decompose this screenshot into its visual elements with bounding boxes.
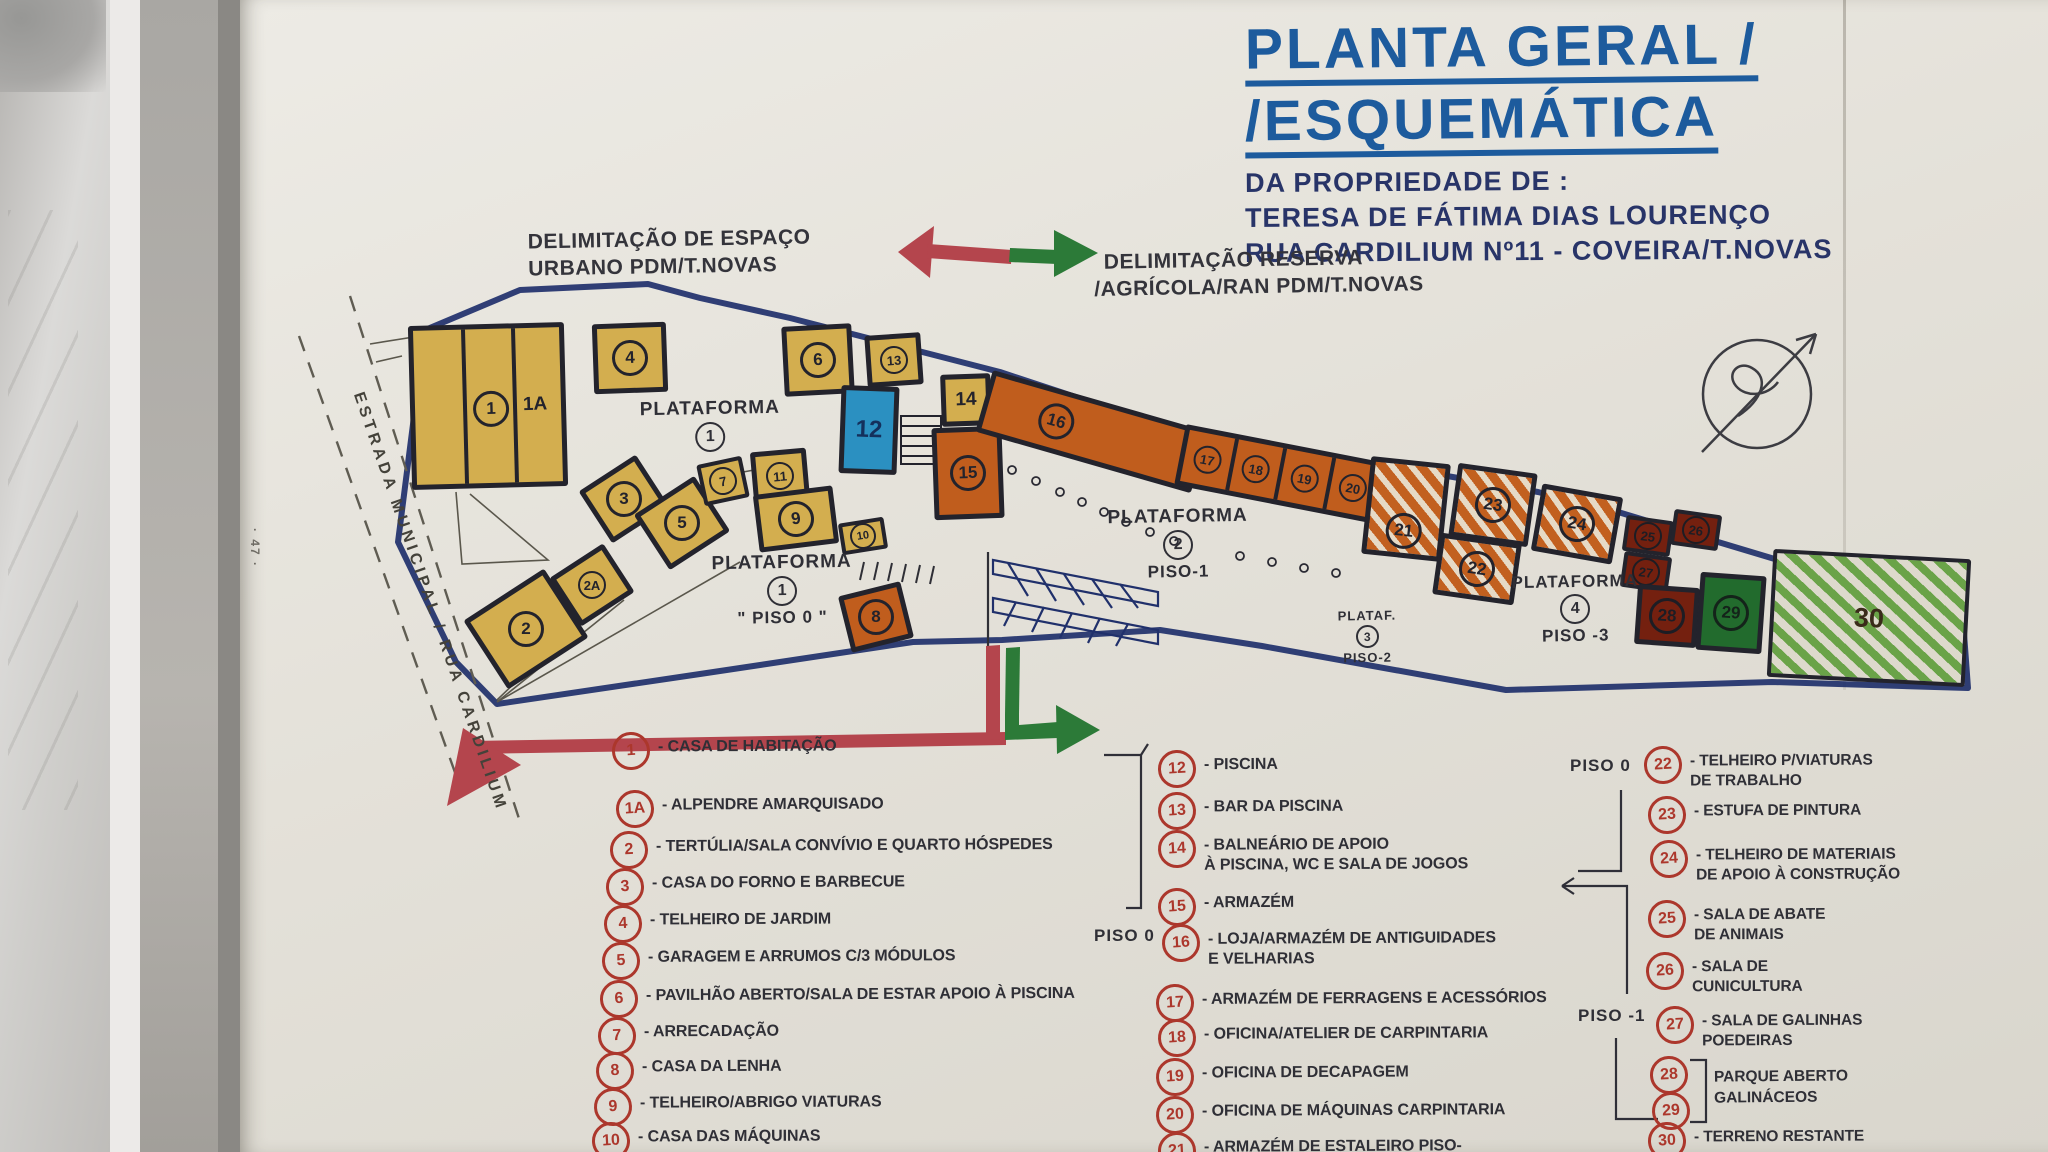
building-number: 19 bbox=[1288, 462, 1321, 495]
legend-text: - CASA DAS MÁQUINAS bbox=[638, 1122, 821, 1148]
building-number: 20 bbox=[1337, 472, 1370, 505]
building-number: 15 bbox=[949, 454, 986, 491]
piso-label: PISO-2 bbox=[1338, 649, 1397, 665]
legend-text-line1: - BALNEÁRIO DE APOIO bbox=[1204, 836, 1389, 854]
plataforma-number: 4 bbox=[1560, 594, 1591, 625]
legend-number: 17 bbox=[1155, 983, 1195, 1023]
building-number: 28 bbox=[1648, 597, 1686, 635]
building-number: 21 bbox=[1384, 511, 1424, 551]
legend-number: 15 bbox=[1157, 887, 1197, 927]
wall-divider bbox=[461, 330, 469, 484]
legend-item-24: 24- TELHEIRO DE MATERIAISDE APOIO À CONS… bbox=[1650, 840, 1900, 885]
legend-text: - BAR DA PISCINA bbox=[1204, 792, 1343, 818]
legend-item-22: 22- TELHEIRO P/VIATURASDE TRABALHO bbox=[1644, 746, 1873, 791]
building-number: 2A bbox=[578, 571, 606, 599]
legend-text: - GARAGEM E ARRUMOS C/3 MÓDULOS bbox=[648, 941, 956, 968]
legend-text: - SALA DECUNICULTURA bbox=[1692, 952, 1803, 998]
legend-item-30: 30- TERRENO RESTANTE bbox=[1648, 1122, 1864, 1152]
legend-text: - ARMAZÉM bbox=[1204, 888, 1294, 913]
plataforma-1-label: PLATAFORMA 1 bbox=[640, 397, 781, 453]
legend-item-3: 3- CASA DO FORNO E BARBECUE bbox=[606, 868, 905, 906]
legend-text: - ARMAZÉM DE FERRAGENS E ACESSÓRIOS bbox=[1202, 983, 1547, 1010]
legend-item-8: 8- CASA DA LENHA bbox=[596, 1052, 782, 1090]
plataforma-4-label: PLATAFORMA 4 PISO -3 bbox=[1511, 571, 1639, 647]
plataforma-1-piso0-label: PLATAFORMA 1 " PISO 0 " bbox=[711, 551, 852, 629]
photo-of-hand-drawn-site-plan: · 47 · bbox=[0, 0, 2048, 1152]
piso-0-tag-middle: PISO 0 bbox=[1094, 926, 1155, 946]
legend-item-15: 15- ARMAZÉM bbox=[1158, 888, 1294, 926]
legend-number: 2 bbox=[609, 830, 649, 870]
legend-text: - ALPENDRE AMARQUISADO bbox=[662, 789, 884, 815]
plataforma-2-label: PLATAFORMA 2 PISO-1 bbox=[1107, 505, 1248, 583]
compass-north-icon bbox=[1702, 334, 1816, 452]
legend-number: 10 bbox=[591, 1121, 631, 1152]
legend-item-28: 28 bbox=[1650, 1056, 1688, 1094]
building-28-parque-galinaceos: 28 bbox=[1634, 584, 1700, 648]
legend-item-17: 17- ARMAZÉM DE FERRAGENS E ACESSÓRIOS bbox=[1156, 984, 1547, 1022]
delimitacao-reserva-label: DELIMITAÇÃO RESERVA /AGRÍCOLA/RAN PDM/T.… bbox=[1104, 243, 1424, 303]
legend-text-line2: E VELHARIAS bbox=[1208, 948, 1496, 970]
title-block: PLANTA GERAL / /ESQUEMÁTICA DA PROPRIEDA… bbox=[1245, 18, 1832, 269]
legend-item-26: 26- SALA DECUNICULTURA bbox=[1646, 952, 1803, 997]
legend-text: - TELHEIRO DE JARDIM bbox=[650, 905, 831, 931]
legend-text: - PISCINA bbox=[1204, 750, 1278, 775]
building-29-parque-galinaceos: 29 bbox=[1695, 572, 1766, 654]
building-number: 13 bbox=[879, 345, 909, 375]
legend-item-14: 14- BALNEÁRIO DE APOIOÀ PISCINA, WC E SA… bbox=[1158, 830, 1468, 875]
legend-text: - PAVILHÃO ABERTO/SALA DE ESTAR APOIO À … bbox=[646, 979, 1075, 1006]
legend-text: - CASA DE HABITAÇÃO bbox=[658, 732, 837, 758]
plataforma-number: 1 bbox=[695, 422, 726, 453]
building-number: 14 bbox=[955, 389, 977, 412]
building-number: 26 bbox=[1680, 514, 1712, 546]
legend-item-18: 18- OFICINA/ATELIER DE CARPINTARIA bbox=[1158, 1019, 1488, 1057]
legend-text: - SALA DE ABATEDE ANIMAIS bbox=[1694, 900, 1826, 946]
building-number: 2 bbox=[508, 611, 544, 647]
legend-number: 6 bbox=[599, 979, 639, 1019]
delim-reserva-line2: /AGRÍCOLA/RAN PDM/T.NOVAS bbox=[1094, 272, 1424, 301]
building-number: 7 bbox=[706, 464, 739, 497]
building-9-telheiro-viaturas: 9 bbox=[753, 485, 839, 552]
legend-number: 21 bbox=[1157, 1131, 1197, 1152]
legend-item-9: 9- TELHEIRO/ABRIGO VIATURAS bbox=[594, 1088, 882, 1126]
legend-number: 4 bbox=[603, 904, 643, 944]
piso-label: " PISO 0 " bbox=[712, 607, 852, 629]
area-30-terreno-restante: 30 bbox=[1767, 549, 1971, 687]
building-number: 6 bbox=[799, 341, 837, 379]
plataforma-number: 2 bbox=[1163, 530, 1194, 561]
page-title-line2: /ESQUEMÁTICA bbox=[1245, 88, 1719, 159]
plataforma-number: 3 bbox=[1356, 625, 1379, 648]
building-number: 16 bbox=[1034, 399, 1079, 444]
legend-text-line2: POEDEIRAS bbox=[1702, 1031, 1862, 1052]
legend-number: 5 bbox=[601, 941, 641, 981]
legend-text-line1: - SALA DE GALINHAS bbox=[1702, 1012, 1862, 1030]
building-number: 12 bbox=[855, 416, 883, 445]
legend-item-5: 5- GARAGEM E ARRUMOS C/3 MÓDULOS bbox=[602, 942, 955, 980]
building-24-telheiro-materiais: 24 bbox=[1531, 483, 1624, 564]
building-number: 8 bbox=[858, 599, 894, 635]
building-21-armazem-estaleiro: 21 bbox=[1361, 456, 1451, 562]
building-number: 22 bbox=[1457, 549, 1498, 590]
top-red-arrow-icon bbox=[898, 226, 1012, 278]
legend-text: - CASA DA LENHA bbox=[642, 1052, 782, 1078]
piso-0-tag-right: PISO 0 bbox=[1570, 756, 1631, 776]
building-number: 17 bbox=[1191, 443, 1224, 476]
title-sub1: DA PROPRIEDADE DE : bbox=[1245, 162, 1833, 201]
legend-item-21-cut: 21- ARMAZÉM DE ESTALEIRO PISO- bbox=[1158, 1132, 1462, 1152]
delimitacao-urbano-label: DELIMITAÇÃO DE ESPAÇO URBANO PDM/T.NOVAS bbox=[528, 224, 812, 283]
plataforma-name: PLATAFORMA bbox=[1511, 571, 1638, 593]
plataforma-name: PLATAF. bbox=[1338, 607, 1397, 623]
legend-text: - BALNEÁRIO DE APOIOÀ PISCINA, WC E SALA… bbox=[1204, 829, 1468, 875]
plataforma-number: 1 bbox=[767, 576, 798, 607]
legend-text-line1: - SALA DE ABATE bbox=[1694, 906, 1825, 924]
legend-text: - TERRENO RESTANTE bbox=[1694, 1122, 1864, 1148]
legend-number: 30 bbox=[1647, 1121, 1687, 1152]
legend-number: 1 bbox=[611, 731, 651, 771]
title-sub2: TERESA DE FÁTIMA DIAS LOURENÇO bbox=[1245, 197, 1833, 236]
legend-item-1: 1- CASA DE HABITAÇÃO bbox=[612, 732, 837, 770]
top-green-arrow-icon bbox=[1009, 230, 1098, 277]
bracket-label-line2: GALINÁCEOS bbox=[1714, 1089, 1817, 1107]
legend-number: 13 bbox=[1157, 791, 1197, 831]
building-4-telheiro-jardim: 4 bbox=[592, 322, 668, 395]
legend-item-27: 27- SALA DE GALINHASPOEDEIRAS bbox=[1656, 1006, 1862, 1051]
legend-number: 27 bbox=[1655, 1005, 1695, 1045]
legend-text: - TELHEIRO P/VIATURASDE TRABALHO bbox=[1690, 746, 1873, 792]
building-26-sala-cunicultura: 26 bbox=[1670, 509, 1723, 551]
piso-label: PISO -3 bbox=[1512, 625, 1639, 647]
legend-text: - TERTÚLIA/SALA CONVÍVIO E QUARTO HÓSPED… bbox=[656, 830, 1053, 857]
plataforma-3-label: PLATAF. 3 PISO-2 bbox=[1338, 607, 1398, 665]
legend-text: - ARRECADAÇÃO bbox=[644, 1017, 779, 1043]
legend-number: 25 bbox=[1647, 899, 1687, 939]
legend-text-line2: CUNICULTURA bbox=[1692, 977, 1803, 998]
legend-text: - LOJA/ARMAZÉM DE ANTIGUIDADESE VELHARIA… bbox=[1208, 923, 1496, 970]
legend-text-line2: DE TRABALHO bbox=[1690, 771, 1873, 792]
building-1-casa-habitacao: 1 1A bbox=[408, 322, 568, 490]
plataforma-name: PLATAFORMA bbox=[640, 397, 781, 421]
legend-text-line2: DE APOIO À CONSTRUÇÃO bbox=[1696, 864, 1900, 885]
legend-text: - CASA DO FORNO E BARBECUE bbox=[652, 867, 905, 893]
delim-urbano-line1: DELIMITAÇÃO DE ESPAÇO bbox=[528, 226, 811, 254]
legend-text: - ESTUFA DE PINTURA bbox=[1694, 796, 1861, 822]
legend-text: - TELHEIRO DE MATERIAISDE APOIO À CONSTR… bbox=[1696, 839, 1900, 885]
building-number: 25 bbox=[1632, 520, 1664, 552]
delim-urbano-line2: URBANO PDM/T.NOVAS bbox=[528, 253, 777, 280]
building-number: 1 bbox=[473, 390, 510, 427]
building-number: 4 bbox=[611, 339, 648, 376]
building-13-bar-piscina: 13 bbox=[864, 332, 923, 388]
legend-number: 18 bbox=[1157, 1018, 1197, 1058]
legend-number: 8 bbox=[595, 1051, 635, 1091]
legend-number: 3 bbox=[605, 867, 645, 907]
legend-number: 26 bbox=[1645, 951, 1685, 991]
legend-item-7: 7- ARRECADAÇÃO bbox=[598, 1017, 779, 1055]
legend-number: 22 bbox=[1643, 745, 1683, 785]
legend-text: - ARMAZÉM DE ESTALEIRO PISO- bbox=[1204, 1131, 1462, 1152]
legend-number: 20 bbox=[1155, 1095, 1195, 1135]
building-15-armazem: 15 bbox=[931, 426, 1004, 520]
legend-number: 19 bbox=[1155, 1057, 1195, 1097]
building-number: 5 bbox=[664, 505, 700, 541]
legend-item-2: 2- TERTÚLIA/SALA CONVÍVIO E QUARTO HÓSPE… bbox=[610, 831, 1053, 869]
legend-item-10: 10- CASA DAS MÁQUINAS bbox=[592, 1122, 820, 1152]
legend-item-20: 20- OFICINA DE MÁQUINAS CARPINTARIA bbox=[1156, 1096, 1505, 1134]
legend-number: 12 bbox=[1157, 749, 1197, 789]
legend-item-1a: 1A- ALPENDRE AMARQUISADO bbox=[616, 790, 884, 828]
bracket-label-line1: PARQUE ABERTO bbox=[1714, 1067, 1848, 1085]
bottom-green-arrow-icon bbox=[1005, 647, 1100, 754]
legend-text-line1: - LOJA/ARMAZÉM DE ANTIGUIDADES bbox=[1208, 929, 1496, 948]
legend-item-16: 16- LOJA/ARMAZÉM DE ANTIGUIDADESE VELHAR… bbox=[1162, 924, 1496, 969]
legend-text: - SALA DE GALINHASPOEDEIRAS bbox=[1702, 1006, 1863, 1052]
legend-text-line1: - SALA DE bbox=[1692, 958, 1768, 975]
page-title-line1: PLANTA GERAL / bbox=[1245, 15, 1758, 86]
legend-text-line1: - TELHEIRO DE MATERIAIS bbox=[1696, 845, 1896, 863]
building-number: 18 bbox=[1240, 453, 1273, 486]
plataforma-name: PLATAFORMA bbox=[1107, 505, 1248, 529]
building-number: 9 bbox=[776, 499, 816, 539]
legend-item-23: 23- ESTUFA DE PINTURA bbox=[1648, 796, 1861, 834]
legend-text-line1: - TELHEIRO P/VIATURAS bbox=[1690, 752, 1873, 770]
wall-divider bbox=[511, 328, 519, 482]
building-23-estufa-pintura: 23 bbox=[1448, 463, 1538, 547]
building-number: 10 bbox=[848, 521, 878, 551]
legend-item-25: 25- SALA DE ABATEDE ANIMAIS bbox=[1648, 900, 1825, 945]
legend-item-13: 13- BAR DA PISCINA bbox=[1158, 792, 1343, 830]
building-12-piscina: 12 bbox=[838, 385, 899, 475]
legend-text: - OFICINA DE MÁQUINAS CARPINTARIA bbox=[1202, 1095, 1505, 1122]
legend-number: 9 bbox=[593, 1087, 633, 1127]
legend-number: 1A bbox=[615, 789, 655, 829]
legend-number: 14 bbox=[1157, 829, 1197, 869]
legend-number: 24 bbox=[1649, 839, 1689, 879]
legend-text-line2: DE ANIMAIS bbox=[1694, 925, 1826, 946]
building-number: 29 bbox=[1712, 594, 1750, 632]
legend-bracket-label: PARQUE ABERTO GALINÁCEOS bbox=[1714, 1065, 1848, 1108]
building-number: 1A bbox=[523, 393, 548, 416]
building-number: 23 bbox=[1473, 485, 1514, 526]
legend-text: - TELHEIRO/ABRIGO VIATURAS bbox=[640, 1087, 882, 1113]
building-number: 11 bbox=[765, 461, 795, 491]
legend-number: 16 bbox=[1161, 923, 1201, 963]
legend-item-6: 6- PAVILHÃO ABERTO/SALA DE ESTAR APOIO À… bbox=[600, 980, 1075, 1018]
legend-text: - OFICINA/ATELIER DE CARPINTARIA bbox=[1204, 1018, 1488, 1044]
delim-reserva-line1: DELIMITAÇÃO RESERVA bbox=[1104, 246, 1364, 274]
legend-item-4: 4- TELHEIRO DE JARDIM bbox=[604, 905, 831, 943]
legend-text-line2: À PISCINA, WC E SALA DE JOGOS bbox=[1204, 854, 1468, 875]
legend-item-19: 19- OFICINA DE DECAPAGEM bbox=[1156, 1058, 1409, 1096]
building-22-telheiro-viaturas: 22 bbox=[1432, 533, 1522, 606]
piso-label: PISO-1 bbox=[1108, 561, 1248, 583]
legend-number: 23 bbox=[1647, 795, 1687, 835]
legend-item-12: 12- PISCINA bbox=[1158, 750, 1278, 788]
area-number: 30 bbox=[1853, 602, 1885, 635]
legend-text: - OFICINA DE DECAPAGEM bbox=[1202, 1057, 1409, 1083]
building-number: 24 bbox=[1556, 503, 1598, 545]
legend-number: 7 bbox=[597, 1016, 637, 1056]
plataforma-name: PLATAFORMA bbox=[711, 551, 852, 575]
piso-minus1-tag-right: PISO -1 bbox=[1578, 1006, 1645, 1026]
legend-number: 28 bbox=[1649, 1055, 1689, 1095]
